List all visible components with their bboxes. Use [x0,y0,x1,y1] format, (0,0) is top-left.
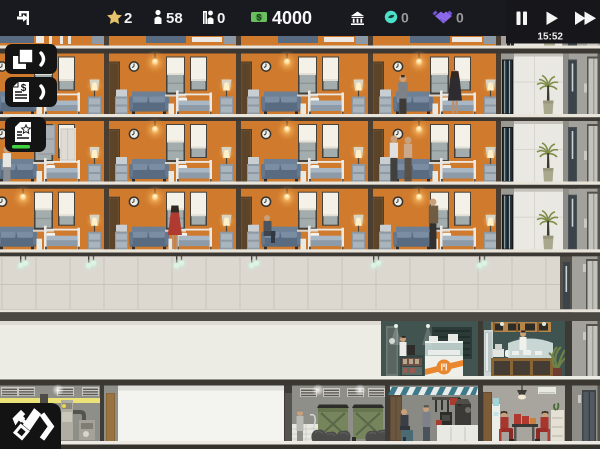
svg-text:0: 0 [401,10,409,26]
svg-text:0: 0 [456,10,464,26]
svg-text:2: 2 [124,10,132,27]
svg-text:58: 58 [166,10,183,27]
svg-text:0: 0 [217,10,225,27]
svg-text:$: $ [21,83,27,94]
svg-text:15:52: 15:52 [537,32,563,43]
svg-text:$: $ [256,12,261,22]
svg-text:4000: 4000 [272,8,312,28]
